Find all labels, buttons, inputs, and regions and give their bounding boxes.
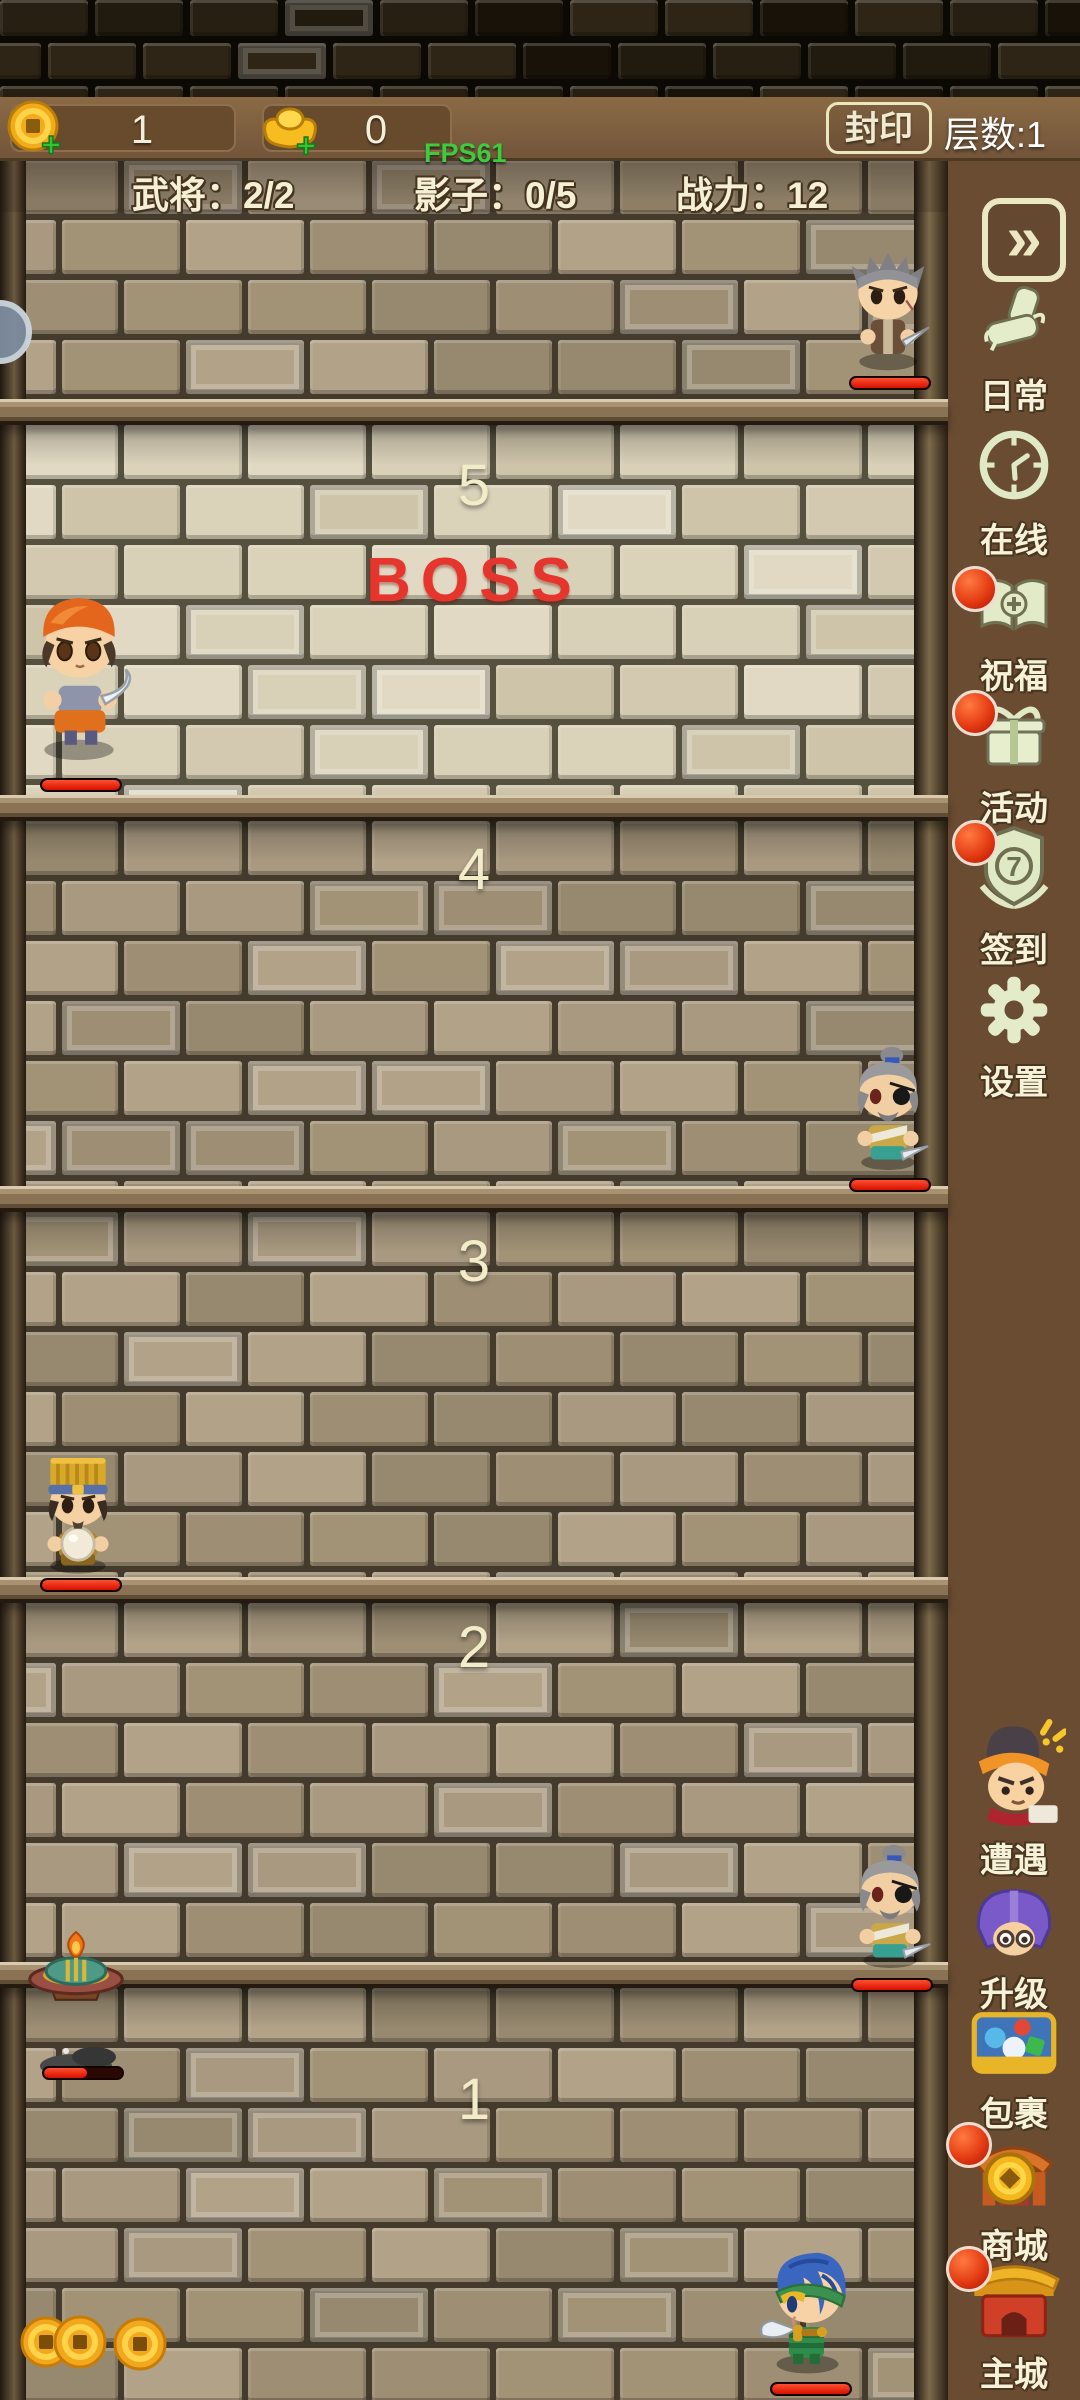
expand-sidebar-button[interactable]: » <box>982 198 1066 282</box>
enemy-topknot-eyepatch <box>846 1040 930 1174</box>
gear-icon <box>976 972 1052 1048</box>
notification-badge <box>952 690 998 736</box>
sidebar-item-main-city[interactable]: 主城 <box>948 2252 1080 2396</box>
sidebar-item-settings[interactable]: 设置 <box>948 972 1080 1104</box>
hero-blue-hair <box>758 2246 856 2376</box>
shadows-stat: 影子：0/5 <box>414 165 576 219</box>
floor-number-5: 5 <box>0 452 948 519</box>
power-stat: 战力：12 <box>676 165 828 219</box>
encounter-face-icon <box>962 1718 1066 1826</box>
enemy-healthbar <box>849 376 931 390</box>
notification-badge <box>952 820 998 866</box>
sidebar-label: 遭遇 <box>948 1833 1080 1882</box>
floor-number-3: 3 <box>0 1228 948 1295</box>
floor-beam <box>0 1186 948 1212</box>
floor-counter-label: 层数:1 <box>944 106 1046 158</box>
sidebar-item-daily[interactable]: 日常 <box>948 284 1080 418</box>
scroll-icon <box>974 284 1054 362</box>
floor-number-1: 1 <box>0 2066 948 2133</box>
backpack-chest-icon <box>968 2006 1060 2080</box>
sidebar-label: 在线 <box>948 513 1080 562</box>
svg-text:7: 7 <box>1006 851 1022 882</box>
shadow-healthbar <box>42 2066 124 2080</box>
sidebar-item-signin[interactable]: 7 签到 <box>948 824 1080 972</box>
sidebar-item-online[interactable]: 在线 <box>948 424 1080 562</box>
left-wood-pillar <box>0 160 26 2400</box>
svg-text:+: + <box>41 126 61 159</box>
floor-beam <box>0 1577 948 1603</box>
sidebar-label: 日常 <box>948 369 1080 418</box>
svg-text:+: + <box>296 127 316 160</box>
enemy-healthbar <box>851 1978 933 1992</box>
floor-beam <box>0 1962 948 1988</box>
enemy-grey-warrior <box>845 248 931 374</box>
boss-healthbar <box>40 778 122 792</box>
dropped-coins[interactable] <box>18 2312 178 2372</box>
floor-beam <box>0 795 948 821</box>
enemy-topknot-eyepatch <box>848 1838 932 1972</box>
sidebar-item-backpack[interactable]: 包裹 <box>948 2006 1080 2136</box>
sidebar-item-blessing[interactable]: 祝福 <box>948 570 1080 698</box>
sidebar-item-activity[interactable]: 活动 <box>948 694 1080 830</box>
sidebar-item-upgrade[interactable]: 升级 <box>948 1882 1080 2016</box>
enemy-healthbar <box>849 1178 931 1192</box>
upgrade-helmet-icon <box>968 1882 1060 1960</box>
boss-orange-turban <box>26 583 138 763</box>
ingot-plus-icon[interactable]: + <box>258 100 322 165</box>
coin-plus-icon[interactable]: + <box>6 99 66 164</box>
generals-stat: 武将：2/2 <box>132 165 294 219</box>
sidebar-item-encounter[interactable]: 遭遇 <box>948 1718 1080 1882</box>
ingot-value: 0 <box>312 108 440 153</box>
notification-badge <box>952 566 998 612</box>
right-wood-pillar <box>914 160 948 2400</box>
hero-healthbar <box>770 2382 852 2396</box>
fps-counter: FPS61 <box>424 138 507 169</box>
floor-number-2: 2 <box>0 1614 948 1681</box>
general-gold-crown <box>36 1446 120 1576</box>
floor-number-4: 4 <box>0 836 948 903</box>
game-screen: 5 BOSS 4 3 2 1 1 0 + + FPS61 封印 层数:1 武将：… <box>0 0 1080 2400</box>
floor-beam <box>0 399 948 425</box>
boss-label: BOSS <box>0 545 948 616</box>
general-healthbar <box>40 1578 122 1592</box>
clock-icon <box>973 424 1055 506</box>
sidebar-label: 签到 <box>948 923 1080 972</box>
brazier-object <box>24 1930 128 2006</box>
notification-badge <box>946 2122 992 2168</box>
notification-badge <box>946 2246 992 2292</box>
seal-button[interactable]: 封印 <box>826 102 932 154</box>
sidebar-label: 主城 <box>948 2347 1080 2396</box>
coin-value: 1 <box>60 108 224 153</box>
top-dark-wall <box>0 0 1080 97</box>
sidebar-label: 设置 <box>948 1055 1080 1104</box>
